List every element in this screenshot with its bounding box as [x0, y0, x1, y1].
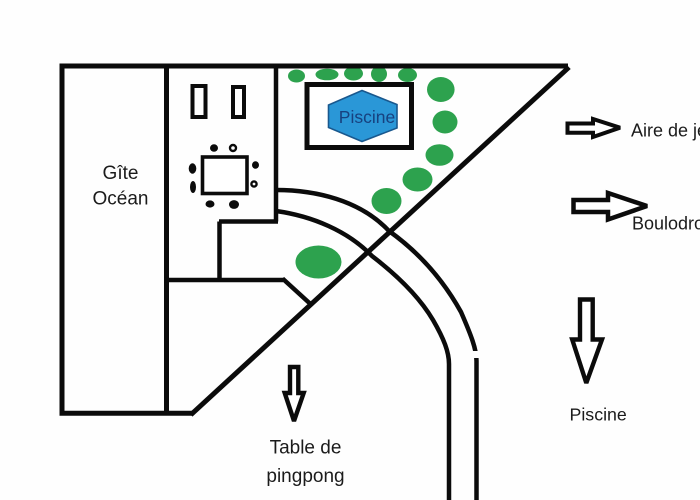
svg-text:Gîte: Gîte: [103, 163, 139, 184]
svg-text:Piscine: Piscine: [570, 405, 627, 425]
svg-text:Table de: Table de: [270, 438, 342, 459]
svg-text:Piscine: Piscine: [339, 107, 395, 127]
svg-text:Boulodrome: Boulodrome: [632, 214, 700, 234]
svg-text:Océan: Océan: [93, 189, 149, 210]
svg-text:Aire de jeux: Aire de jeux: [631, 120, 700, 140]
svg-text:pingpong: pingpong: [266, 466, 344, 487]
